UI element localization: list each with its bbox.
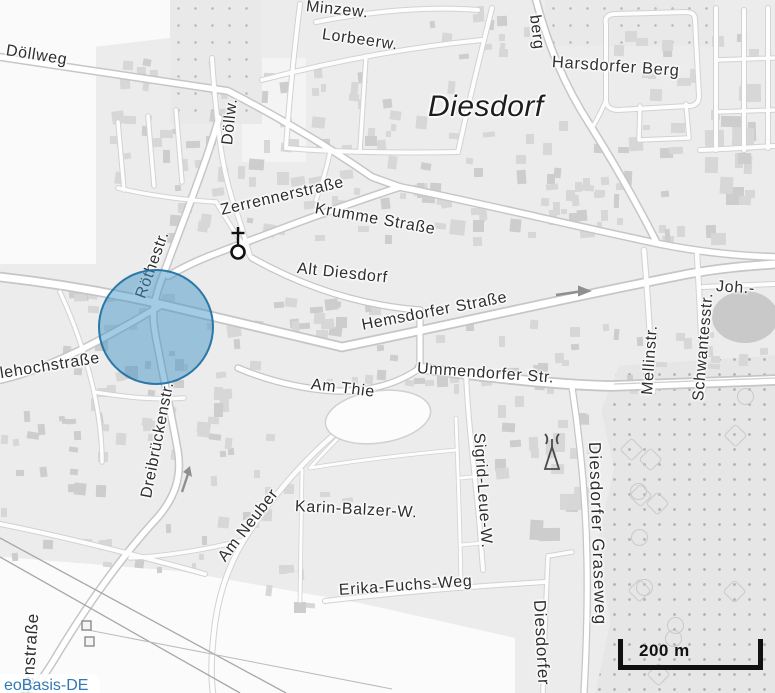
map-canvas[interactable]: Döllweg Döllw. Minzew. Lorbeerw. berg Ha… [0,0,775,693]
location-marker-circle[interactable] [98,269,214,385]
oneway-arrow-icon [182,466,192,492]
attribution-link[interactable]: eoBasis-DE [0,674,100,693]
railway-line [0,538,392,693]
railway-crossing-icon [82,621,91,630]
street-label-joh: Joh.- [715,278,755,299]
railway-crossing-icon [85,637,94,646]
scale-bar: 200 m [618,639,763,670]
telecom-mast-icon [545,434,559,469]
place-label-diesdorf: Diesdorf [428,90,544,124]
large-building-area [712,291,775,343]
scale-bar-label: 200 m [639,641,690,661]
